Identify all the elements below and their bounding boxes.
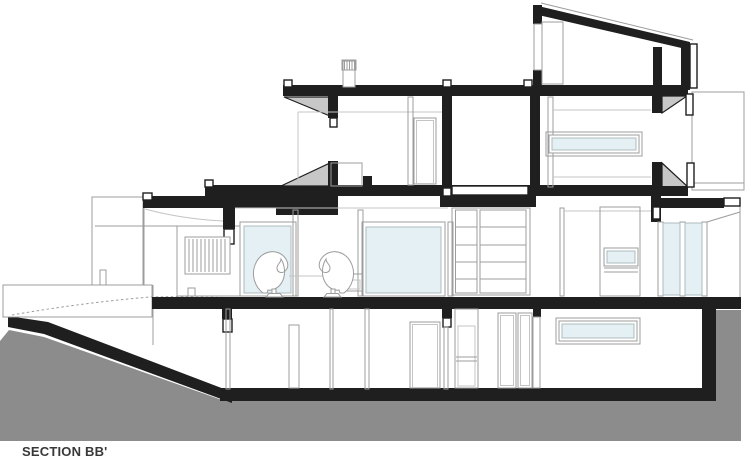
bedroom-partition-wall [442,96,452,196]
chimney [342,60,356,87]
terrace-post-outline [100,270,106,285]
roof-right-parapet [681,43,690,90]
top-left-wall-lower [533,70,542,88]
top-left-window [534,24,542,70]
living-window-right [366,227,441,293]
drawing-title: SECTION BB' [22,444,107,459]
top-left-wall-upper [533,5,542,24]
basement-door-outline-1 [289,325,299,388]
east-canopy-tip [724,198,740,206]
top-floor-volume [533,3,697,90]
basement-door-outline-2 [410,322,440,388]
roof-parapet-cap [690,44,697,88]
skylight-opening [452,186,528,195]
basement-window [562,324,634,338]
basement [222,309,640,389]
floor-vent [188,288,195,296]
east-canopy-slab [661,198,724,208]
left-balcony-floor-wedge [281,163,330,186]
basement-closet [455,309,478,388]
second-floor [281,94,694,196]
terrain-ground [0,299,741,441]
upper-ribbon-window [552,138,636,150]
cabinet-window [607,251,635,263]
entry-post [223,208,235,229]
balcony-edge-downstand [276,196,338,215]
upper-floor-slab [205,185,660,196]
east-balcony-floor-wedge [662,163,688,187]
kitchen-cabinet [560,207,651,296]
east-glazed-wall [658,222,707,296]
sloped-roof-slab [534,5,690,50]
basement-floor-slab [220,388,716,401]
louver-panel [185,237,230,274]
basement-right-wall [702,299,716,400]
top-room-right-wall [653,47,662,88]
left-balcony-roof-wedge [284,97,330,116]
ground-floor-slab [152,297,741,309]
right-background-outline [692,92,744,190]
left-terrace-outline [3,285,152,317]
section-drawing: SECTION BB' [0,0,750,463]
top-room-window-outline [542,22,563,84]
bedroom-wall-outline [408,97,413,185]
shelf-unit [452,208,530,295]
stair-rail-stub [363,176,372,187]
egg-chair-2 [319,252,353,297]
entry-canopy-curve [145,209,223,221]
hall-wall [530,96,540,187]
east-balcony-roof-wedge [662,96,687,113]
architectural-section-sheet: SECTION BB' [0,0,750,463]
bedroom-door-outline [414,118,436,184]
